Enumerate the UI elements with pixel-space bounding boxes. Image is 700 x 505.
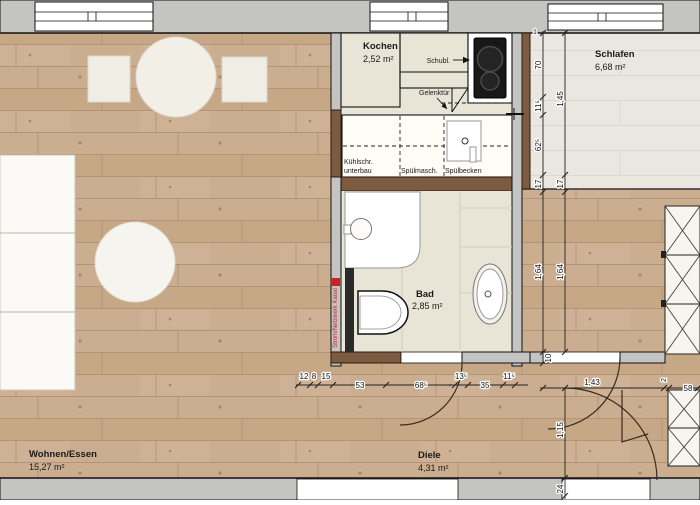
label-spuelbecken: Spülbecken (445, 168, 482, 175)
dim-62-5: 62⁵ (534, 139, 543, 151)
window-kitchen (370, 2, 448, 31)
room-label-bad: Bad (416, 289, 434, 300)
dim-53: 53 (356, 381, 365, 390)
bottom-opening-right (562, 479, 650, 500)
room-label-wohnen: Wohnen/Essen (29, 449, 97, 460)
floor-plan: 12 8 15 53 68⁵ 13⁵ 35 11⁵ 1 70 11⁵ 62⁵ 1… (0, 0, 700, 500)
dim-11-5: 11⁵ (503, 372, 515, 381)
room-area-kochen: 2,52 m² (363, 54, 394, 64)
dim-13-5: 13⁵ (455, 372, 467, 381)
floor-plan-svg: 12 8 15 53 68⁵ 13⁵ 35 11⁵ 1 70 11⁵ 62⁵ 1… (0, 0, 700, 500)
room-label-schlafen: Schlafen (595, 49, 635, 60)
room-area-diele: 4,31 m² (418, 463, 449, 473)
dim-2: 2 (661, 378, 668, 382)
dining-table (136, 37, 216, 117)
door-opening-bad (401, 352, 462, 363)
dim-12: 12 (300, 372, 309, 381)
dim-8: 8 (312, 372, 317, 381)
door-opening-corridor (548, 352, 620, 363)
label-schubl: Schubl. (427, 58, 450, 65)
room-label-diele: Diele (418, 450, 441, 461)
dim-17-b: 17 (556, 179, 565, 188)
room-area-wohnen: 15,27 m² (29, 462, 65, 472)
label-spuelmasch: Spülmasch. (401, 168, 438, 175)
dim-68-5: 68⁵ (415, 381, 427, 390)
round-rug (95, 222, 175, 302)
window-schlafen (548, 4, 663, 30)
wall-left-wood-part (331, 110, 341, 177)
wall-basin (351, 219, 372, 240)
dim-70: 70 (534, 60, 543, 69)
label-kuehlschr-1: Kühlschr. (344, 159, 373, 166)
wall-right-of-kitchen (512, 33, 522, 366)
wall-schlafen-left (522, 33, 530, 189)
dim-24: 24 (556, 484, 565, 493)
room-area-bad: 2,85 m² (412, 301, 443, 311)
label-kuehlschr-2: unterbau (344, 168, 372, 175)
sideboard (0, 155, 75, 390)
top-wall (0, 0, 700, 33)
dim-115: 1,15 (556, 422, 565, 438)
basin-tap (344, 225, 351, 234)
window-left (35, 2, 153, 31)
dim-17-a: 17 (534, 179, 543, 188)
burner-large (478, 47, 503, 72)
wardrobe-lower (668, 390, 700, 466)
dim-145: 1,45 (556, 91, 565, 107)
wall-under-counter (331, 177, 521, 191)
room-area-schlafen: 6,68 m² (595, 62, 626, 72)
washbasin-inner (477, 269, 503, 319)
kanal-note: Strom/Netzwerk Kanal (333, 288, 339, 348)
toilet (358, 291, 408, 334)
dim-10: 10 (544, 353, 553, 362)
chair-left (88, 56, 130, 102)
dim-15: 15 (322, 372, 331, 381)
dim-143: 1,43 (584, 378, 600, 387)
room-label-kochen: Kochen (363, 41, 398, 52)
dim-1: 1 (533, 29, 537, 36)
wall-stub (345, 268, 354, 352)
dim-58: 58 (684, 384, 693, 393)
bottom-wall (0, 478, 700, 500)
sink-drainer (470, 147, 476, 162)
label-gelenktuer: Gelenktür (419, 90, 450, 97)
dim-164-a: 1,64 (534, 264, 543, 280)
wall-bath-bottom (331, 352, 665, 363)
burner-small (481, 72, 499, 90)
chair-right (222, 57, 267, 102)
floor-diele (331, 363, 700, 478)
wardrobe-upper (661, 206, 700, 354)
outlet-marker (331, 278, 340, 286)
dim-11-5-a: 11⁵ (534, 100, 543, 112)
dim-35: 35 (481, 381, 490, 390)
dim-164-b: 1,64 (556, 264, 565, 280)
bottom-opening-left (297, 479, 458, 500)
